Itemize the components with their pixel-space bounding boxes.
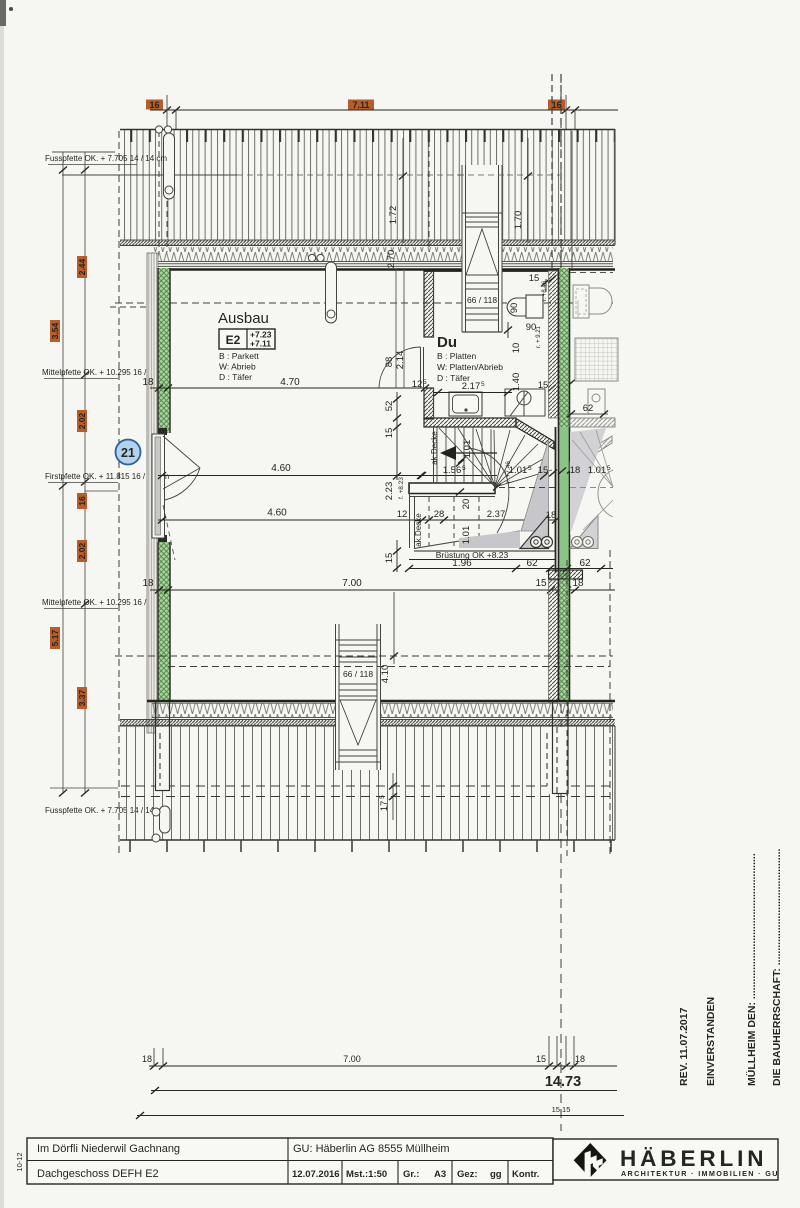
svg-text:GU: Häberlin AG 8555 Müllhe: GU: Häberlin AG 8555 Müllheim [293, 1143, 450, 1155]
svg-text:20: 20 [461, 499, 472, 510]
svg-text:Im Dörfli Niederwil Gachnang: Im Dörfli Niederwil Gachnang [37, 1143, 180, 1155]
svg-text:5: 5 [379, 795, 386, 799]
svg-text:B : Platten: B : Platten [437, 351, 476, 361]
svg-text:r. + 9.21: r. + 9.21 [536, 325, 542, 348]
svg-text:W: Platten/Abrieb: W: Platten/Abrieb [437, 362, 503, 372]
svg-text:Mst.:1:50: Mst.:1:50 [346, 1169, 387, 1180]
svg-text:7.11: 7.11 [352, 100, 369, 110]
svg-text:r. +7.46: r. +7.46 [505, 461, 512, 483]
svg-text:4.70: 4.70 [280, 377, 300, 388]
svg-text:HÄBERLIN: HÄBERLIN [620, 1146, 767, 1171]
svg-text:7.00: 7.00 [343, 1054, 361, 1064]
svg-text:+7.11: +7.11 [250, 339, 271, 349]
svg-text:18: 18 [142, 377, 154, 388]
svg-text:5: 5 [481, 381, 485, 388]
svg-text:18: 18 [572, 578, 584, 589]
svg-text:2.37: 2.37 [487, 509, 506, 520]
svg-text:62: 62 [526, 558, 538, 569]
svg-text:5: 5 [462, 465, 466, 472]
svg-text:B : Parkett: B : Parkett [219, 351, 259, 361]
svg-text:5: 5 [423, 379, 427, 386]
svg-text:10-12: 10-12 [15, 1152, 24, 1171]
svg-text:16: 16 [77, 496, 87, 506]
svg-text:2.17: 2.17 [462, 381, 481, 392]
svg-text:4.60: 4.60 [267, 508, 287, 519]
svg-text:1.56: 1.56 [443, 465, 462, 476]
svg-text:66 / 118: 66 / 118 [467, 295, 497, 305]
svg-text:MÜLLHEIM DEN: ................: MÜLLHEIM DEN: ..........................… [745, 853, 758, 1086]
svg-text:66 / 118: 66 / 118 [343, 669, 373, 679]
svg-text:ak.Decke: ak.Decke [414, 513, 423, 547]
svg-text:62: 62 [583, 403, 594, 414]
svg-text:2.02: 2.02 [77, 412, 87, 429]
svg-text:1.72: 1.72 [388, 206, 399, 225]
svg-text:21: 21 [121, 446, 135, 460]
svg-text:15: 15 [529, 273, 540, 284]
svg-text:18: 18 [546, 510, 557, 521]
svg-text:12: 12 [397, 509, 408, 520]
svg-text:17: 17 [379, 801, 390, 812]
svg-text:DIE BAUHERRSCHAFT: ...........: DIE BAUHERRSCHAFT: .....................… [771, 848, 783, 1086]
svg-text:2.23: 2.23 [384, 482, 395, 501]
svg-text:1.01: 1.01 [462, 440, 473, 459]
svg-text:2.44: 2.44 [77, 258, 87, 275]
svg-text:1.40: 1.40 [511, 373, 522, 392]
svg-text:4.10: 4.10 [380, 665, 391, 684]
svg-text:E2: E2 [226, 333, 241, 347]
svg-text:1.01: 1.01 [588, 465, 607, 476]
svg-text:15.15: 15.15 [552, 1105, 571, 1114]
svg-text:18: 18 [142, 578, 154, 589]
svg-text:Kontr.: Kontr. [512, 1169, 539, 1180]
svg-text:A3: A3 [434, 1169, 446, 1180]
svg-text:2.70: 2.70 [386, 250, 397, 269]
svg-text:18: 18 [570, 465, 581, 476]
svg-text:f. +8.23: f. +8.23 [398, 477, 405, 499]
svg-text:90: 90 [509, 303, 520, 314]
svg-text:Gez:: Gez: [457, 1169, 478, 1180]
svg-text:15: 15 [536, 1054, 546, 1064]
svg-text:4.60: 4.60 [271, 463, 291, 474]
svg-text:16: 16 [551, 100, 561, 110]
svg-text:D : Täfer: D : Täfer [219, 372, 252, 382]
svg-text:12.07.2016: 12.07.2016 [292, 1169, 340, 1180]
svg-text:10: 10 [511, 343, 522, 354]
svg-text:Dachgeschoss DEFH E2: Dachgeschoss DEFH E2 [37, 1168, 159, 1180]
svg-text:18: 18 [142, 1054, 152, 1064]
svg-text:62: 62 [579, 558, 591, 569]
svg-text:Gr.:: Gr.: [403, 1169, 419, 1180]
svg-text:ak.Decke: ak.Decke [430, 431, 439, 465]
svg-text:5.17: 5.17 [50, 629, 60, 646]
svg-text:1.96: 1.96 [452, 558, 472, 569]
svg-text:W: Abrieb: W: Abrieb [219, 362, 256, 372]
svg-text:2.14: 2.14 [395, 351, 406, 370]
svg-text:Brüstung OK +8.23: Brüstung OK +8.23 [436, 550, 509, 560]
svg-text:ARCHITEKTUR · IMMOBILIEN · GU: ARCHITEKTUR · IMMOBILIEN · GU [621, 1169, 779, 1178]
svg-text:90: 90 [526, 322, 537, 333]
svg-text:Ausbau: Ausbau [218, 310, 269, 327]
svg-text:Du: Du [437, 334, 457, 351]
svg-text:28: 28 [434, 509, 445, 520]
svg-text:3.54: 3.54 [50, 322, 60, 339]
svg-text:1.01: 1.01 [461, 526, 472, 545]
svg-text:EINVERSTANDEN: EINVERSTANDEN [705, 997, 717, 1086]
svg-text:REV. 11.07.2017: REV. 11.07.2017 [678, 1007, 690, 1086]
svg-text:5: 5 [528, 465, 532, 472]
svg-text:2.02: 2.02 [77, 542, 87, 559]
svg-text:12: 12 [412, 379, 423, 390]
svg-text:15: 15 [538, 380, 549, 391]
svg-text:7.00: 7.00 [342, 578, 362, 589]
svg-text:3.37: 3.37 [77, 689, 87, 706]
svg-text:gg: gg [490, 1169, 502, 1180]
svg-text:5: 5 [607, 465, 611, 472]
svg-text:18: 18 [575, 1054, 585, 1064]
svg-text:Fusspfette OK. + 7.705 14 / 14: Fusspfette OK. + 7.705 14 / 14 cm [45, 154, 167, 163]
svg-text:1.70: 1.70 [513, 211, 524, 230]
svg-text:14.73: 14.73 [545, 1074, 581, 1090]
svg-text:15: 15 [535, 578, 547, 589]
svg-text:16: 16 [149, 100, 159, 110]
